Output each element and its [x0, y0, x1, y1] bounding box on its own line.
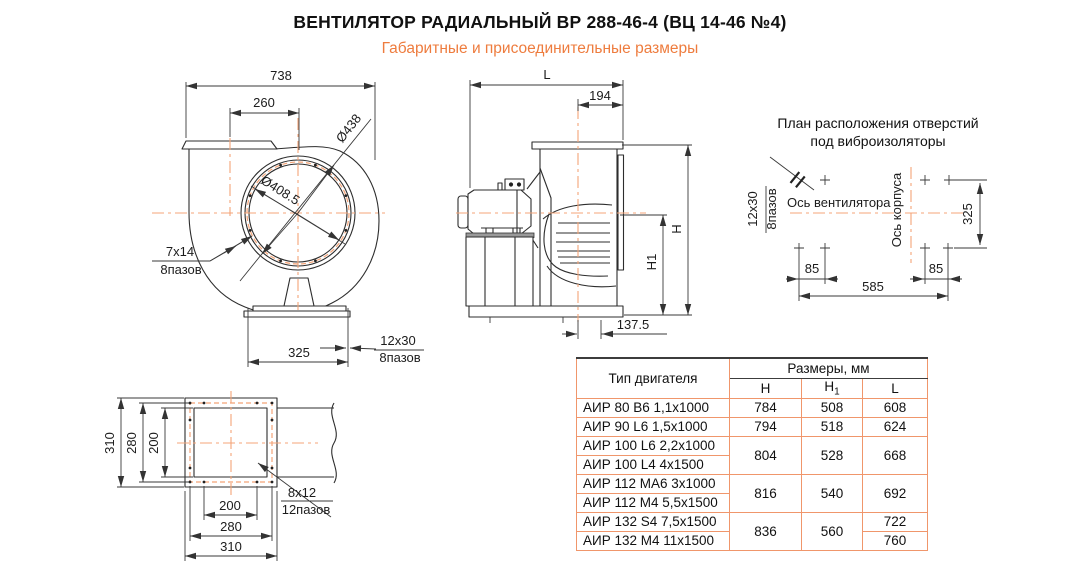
cell-l: 692	[863, 475, 928, 513]
flange-dim-v200: 200	[146, 432, 161, 454]
front-dim-260: 260	[253, 95, 275, 110]
front-slot-size: 7x14	[166, 244, 194, 259]
side-dim-137: 137.5	[617, 317, 650, 332]
plan-slot-count: 8пазов	[764, 188, 779, 229]
cell-h1: 560	[802, 513, 863, 551]
cell-l: 668	[863, 437, 928, 475]
front-view-drawing: 738 260 Ø438 Ø408.5 7x14 8пазов 325 12x3…	[152, 68, 424, 367]
table-header-motor: Тип двигателя	[577, 358, 730, 399]
plan-body-axis-label: Ось корпуса	[889, 172, 904, 247]
front-base-slot-size: 12x30	[380, 333, 415, 348]
flange-slot-count: 12пазов	[282, 502, 331, 517]
motor-body	[468, 190, 531, 234]
cell-h: 816	[730, 475, 802, 513]
flange-centerlines	[177, 391, 318, 495]
cell-l: 722	[863, 513, 928, 532]
table-row: АИР 132 S4 7,5x1500836560722	[577, 513, 928, 532]
side-dim-L: L	[543, 67, 550, 82]
plan-dim-585: 585	[862, 279, 884, 294]
cell-motor-type: АИР 132 S4 7,5x1500	[577, 513, 730, 532]
cell-h1: 540	[802, 475, 863, 513]
drawing-page: ВЕНТИЛЯТОР РАДИАЛЬНЫЙ ВР 288-46-4 (ВЦ 14…	[0, 0, 1080, 564]
front-base-slot-count: 8пазов	[379, 350, 420, 365]
motor-pedestal	[466, 237, 533, 306]
table-header-sizes: Размеры, мм	[730, 358, 928, 379]
plan-dim-325: 325	[960, 203, 975, 225]
table-header-l: L	[863, 379, 928, 399]
front-dim-738: 738	[270, 68, 292, 83]
plan-slot-size: 12x30	[745, 191, 760, 226]
plan-title-line1: План расположения отверстий	[777, 115, 978, 131]
plan-view-drawing: План расположения отверстий под виброизо…	[745, 115, 987, 301]
flange-view-drawing: 310 280 200 200 280 310 8x12 12пазов	[102, 391, 336, 561]
flange-dim-h200: 200	[219, 498, 241, 513]
cell-h1: 528	[802, 437, 863, 475]
terminal-bolt-left	[509, 182, 513, 186]
side-dim-194: 194	[589, 88, 611, 103]
flange-dim-h280: 280	[220, 519, 242, 534]
cell-motor-type: АИР 112 МА6 3x1000	[577, 475, 730, 494]
cell-h1: 518	[802, 418, 863, 437]
plan-dim-85-right: 85	[929, 261, 943, 276]
cell-motor-type: АИР 100 L4 4x1500	[577, 456, 730, 475]
flange-slot-size: 8x12	[288, 485, 316, 500]
table-header-h1: Н1	[802, 379, 863, 399]
plan-dim-85-left: 85	[805, 261, 819, 276]
plan-title-line2: под виброизоляторы	[810, 133, 945, 149]
cell-motor-type: АИР 100 L6 2,2x1000	[577, 437, 730, 456]
flange-dim-h310: 310	[220, 539, 242, 554]
cell-l: 760	[863, 532, 928, 551]
table-row: АИР 90 L6 1,5x1000794518624	[577, 418, 928, 437]
side-view-drawing: L 194 H H1 137.5	[456, 67, 692, 339]
table-row: АИР 112 МА6 3x1000816540692	[577, 475, 928, 494]
side-base-plate	[469, 306, 623, 317]
cell-h: 836	[730, 513, 802, 551]
cell-h: 804	[730, 437, 802, 475]
front-dia-438: Ø438	[333, 111, 364, 145]
table-row: АИР 100 L6 2,2x1000804528668	[577, 437, 928, 456]
flange-dim-v280: 280	[124, 432, 139, 454]
motor-table-body: АИР 80 В6 1,1x1000784508608АИР 90 L6 1,5…	[577, 399, 928, 551]
cell-motor-type: АИР 112 М4 5,5x1500	[577, 494, 730, 513]
table-row: АИР 80 В6 1,1x1000784508608	[577, 399, 928, 418]
cell-h: 794	[730, 418, 802, 437]
cell-l: 624	[863, 418, 928, 437]
base-plate-lower	[244, 311, 350, 317]
cell-motor-type: АИР 132 М4 11x1500	[577, 532, 730, 551]
cell-h: 784	[730, 399, 802, 418]
terminal-bolt-right	[517, 182, 521, 186]
table-header-h: Н	[730, 379, 802, 399]
cell-l: 608	[863, 399, 928, 418]
side-dim-H: H	[669, 224, 684, 233]
plan-fan-axis-label: Ось вентилятора	[787, 195, 891, 210]
motor-size-table: Тип двигателя Размеры, мм Н Н1 L АИР 80 …	[576, 357, 928, 551]
cell-motor-type: АИР 90 L6 1,5x1000	[577, 418, 730, 437]
front-slot-count: 8пазов	[160, 262, 201, 277]
hole-cross-marks	[794, 175, 954, 253]
cell-h1: 508	[802, 399, 863, 418]
flange-dim-v310: 310	[102, 432, 117, 454]
motor-fan-cover	[458, 196, 468, 228]
terminal-box	[505, 179, 524, 190]
flange-extension-lines	[117, 398, 333, 561]
terminal-box-nub	[498, 183, 502, 190]
cell-motor-type: АИР 80 В6 1,1x1000	[577, 399, 730, 418]
base-plate-upper	[253, 306, 346, 311]
front-dim-325: 325	[288, 345, 310, 360]
side-dim-H1: H1	[644, 254, 659, 271]
